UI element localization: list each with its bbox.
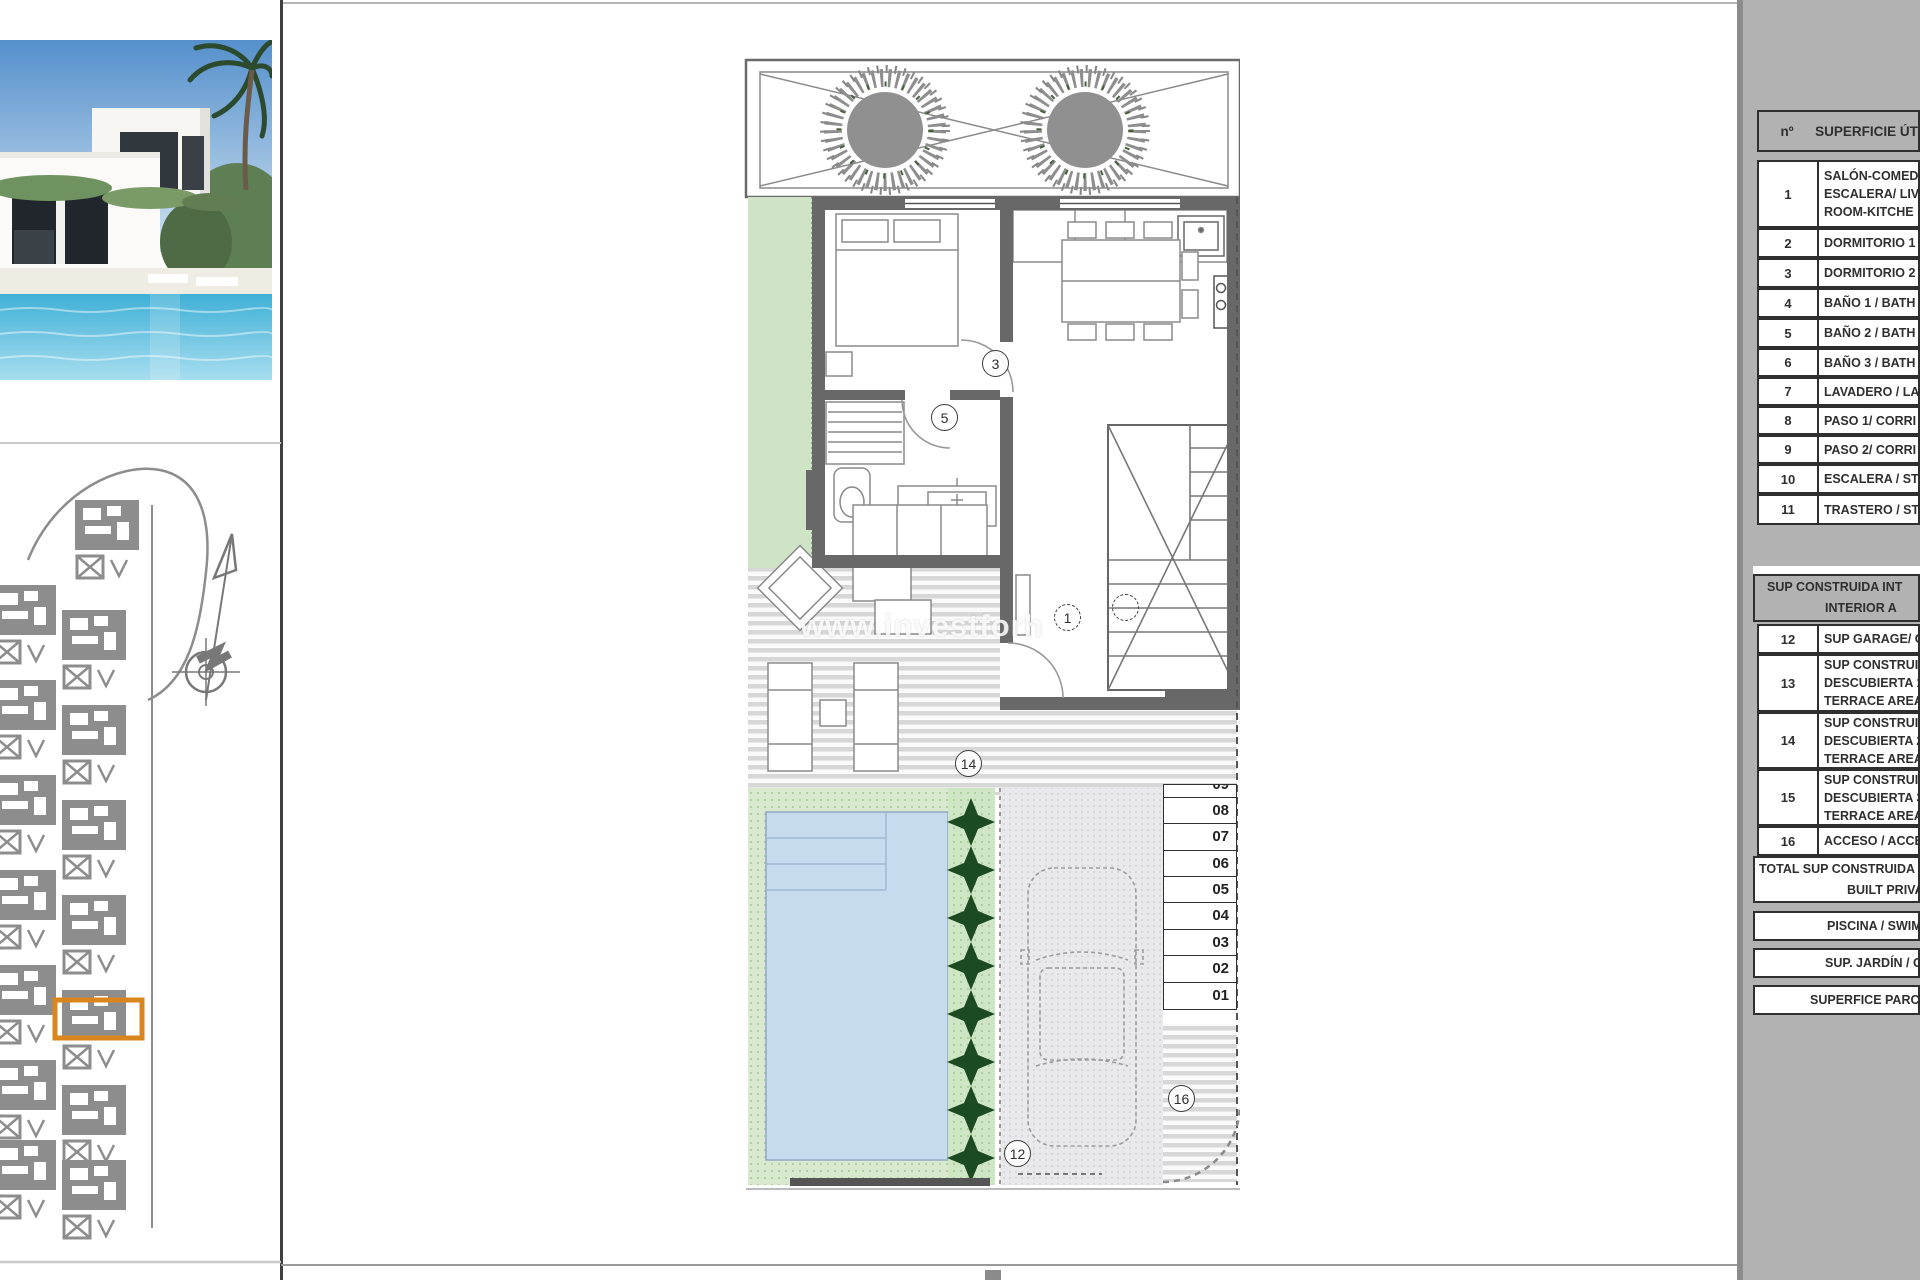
row-number: 3 (1759, 260, 1819, 286)
section-label: INTERIOR A (1755, 598, 1918, 618)
table-header: nº SUPERFICIE ÚTI (1757, 110, 1920, 152)
header-number-col: nº (1759, 124, 1815, 139)
table-row-5: 5 BAÑO 2 / BATH (1757, 318, 1920, 348)
stall-cell: 04 (1163, 902, 1237, 930)
table-row-16: 16 ACCESO / ACCE (1757, 826, 1920, 856)
table-row-11: 11 TRASTERO / STO (1757, 494, 1920, 525)
stall-cell: 06 (1163, 850, 1237, 878)
row-number: 11 (1759, 496, 1819, 523)
row-number: 15 (1759, 771, 1819, 824)
garden-strip (748, 197, 812, 572)
stall-cell: 07 (1163, 823, 1237, 851)
sheet-bottom-border (281, 1264, 1737, 1266)
row-number: 13 (1759, 656, 1819, 710)
row-label: TERRACE AREA (1824, 750, 1918, 768)
table-row-7: 7 LAVADERO / LA (1757, 377, 1920, 406)
garden-summary-box: SUP. JARDÍN / GAR (1753, 948, 1920, 978)
total-label: TOTAL SUP CONSTRUIDA (1755, 858, 1918, 880)
row-label: BAÑO 1 / BATH (1824, 294, 1918, 312)
row-label: LAVADERO / LA (1824, 383, 1918, 401)
villa-photo (0, 40, 272, 380)
outdoor-sofa (853, 505, 987, 563)
table-row-8: 8 PASO 1/ CORRI (1757, 406, 1920, 435)
stairs (1108, 425, 1237, 690)
room-label-16: 16 (1168, 1085, 1195, 1112)
row-number: 2 (1759, 230, 1819, 256)
table-row-12: 12 SUP GARAGE/ G (1757, 624, 1920, 654)
table-row-9: 9 PASO 2/ CORRI (1757, 435, 1920, 464)
plot-summary-box: SUPERFICE PARCELA (1753, 985, 1920, 1015)
room-label-1: 1 (1054, 604, 1081, 631)
table-row-1: 1 SALÓN-COMED ESCALERA/ LIVI ROOM-KITCHE (1757, 160, 1920, 228)
row-number: 8 (1759, 408, 1819, 433)
row-label: ACCESO / ACCE (1824, 832, 1918, 850)
table-row-13: 13 SUP CONSTRUI DESCUBIERTA 1 TERRACE AR… (1757, 654, 1920, 712)
summary-label: SUPERFICE PARCELA (1755, 987, 1918, 1013)
row-label: SUP CONSTRUI (1824, 771, 1918, 789)
row-label: PASO 1/ CORRI (1824, 412, 1918, 430)
row-label: ROOM-KITCHE (1824, 203, 1918, 221)
row-number: 10 (1759, 466, 1819, 492)
sun-lounger (768, 663, 812, 771)
row-number: 7 (1759, 379, 1819, 404)
header-label: SUPERFICIE ÚTI (1815, 124, 1918, 139)
row-number: 4 (1759, 290, 1819, 316)
stall-cell: 03 (1163, 929, 1237, 957)
row-label: ESCALERA/ LIVI (1824, 185, 1918, 203)
summary-label: PISCINA / SWIMM (1755, 913, 1918, 939)
row-number: 9 (1759, 437, 1819, 462)
room-label-empty (1112, 594, 1139, 621)
built-interior-header: SUP CONSTRUIDA INT INTERIOR A (1753, 574, 1920, 622)
photo-divider-line (0, 442, 281, 444)
row-number: 14 (1759, 714, 1819, 767)
total-label: BUILT PRIVAT (1755, 880, 1918, 900)
nightstand (826, 352, 852, 376)
total-built-box: TOTAL SUP CONSTRUIDA BUILT PRIVAT (1753, 856, 1920, 903)
row-number: 12 (1759, 626, 1819, 652)
site-plan (0, 465, 281, 1265)
row-label: TERRACE AREA (1824, 807, 1918, 825)
row-label: BAÑO 3 / BATH (1824, 354, 1918, 372)
row-label: SUP CONSTRUI (1824, 714, 1918, 732)
stall-cell: 02 (1163, 955, 1237, 983)
table-row-10: 10 ESCALERA / STA (1757, 464, 1920, 494)
watermark: www.investforh (800, 608, 1044, 644)
row-label: SUP CONSTRUI (1824, 656, 1918, 674)
scale-mark (985, 1270, 1001, 1280)
table-row-4: 4 BAÑO 1 / BATH (1757, 288, 1920, 318)
sun-lounger (148, 274, 188, 283)
row-number: 1 (1759, 162, 1819, 226)
row-label: PASO 2/ CORRI (1824, 441, 1918, 459)
row-label: SALÓN-COMED (1824, 167, 1918, 185)
row-label: SUP GARAGE/ G (1824, 630, 1918, 648)
stall-cell: 01 (1163, 982, 1237, 1010)
row-label: TERRACE AREA (1824, 692, 1918, 710)
panel-gap (1753, 566, 1920, 574)
pergola-frame (746, 60, 1240, 197)
row-number: 5 (1759, 320, 1819, 346)
table-row-6: 6 BAÑO 3 / BATH (1757, 348, 1920, 377)
stall-cell: 05 (1163, 876, 1237, 904)
table-row-15: 15 SUP CONSTRUI DESCUBIERTA 3 TERRACE AR… (1757, 769, 1920, 826)
stall-number-strip: 09 08 07 06 05 04 03 02 01 (1163, 786, 1237, 1010)
photo-pool (0, 294, 272, 380)
row-number: 16 (1759, 828, 1819, 854)
row-label: DORMITORIO 1 (1824, 234, 1918, 252)
sheet-top-border (281, 2, 1737, 4)
row-label: DORMITORIO 2 (1824, 264, 1918, 282)
room-label-3: 3 (982, 350, 1009, 377)
table-row-14: 14 SUP CONSTRUI DESCUBIERTA 2 TERRACE AR… (1757, 712, 1920, 769)
row-label: TRASTERO / STO (1824, 501, 1918, 519)
room-label-5: 5 (931, 404, 958, 431)
pool-summary-box: PISCINA / SWIMM (1753, 911, 1920, 941)
stall-cell: 08 (1163, 797, 1237, 825)
table-row-3: 3 DORMITORIO 2 (1757, 258, 1920, 288)
row-label: DESCUBIERTA 2 (1824, 732, 1918, 750)
row-label: ESCALERA / STA (1824, 470, 1918, 488)
summary-label: SUP. JARDÍN / GAR (1755, 950, 1918, 976)
plan-sheet: www.investforh 3 5 1 14 12 16 09 08 07 0… (0, 0, 1920, 1280)
section-label: SUP CONSTRUIDA INT (1755, 576, 1918, 598)
row-label: DESCUBIERTA 1 (1824, 674, 1918, 692)
room-label-14: 14 (955, 750, 982, 777)
room-label-12: 12 (1004, 1140, 1031, 1167)
row-label: DESCUBIERTA 3 (1824, 789, 1918, 807)
row-number: 6 (1759, 350, 1819, 375)
row-label: BAÑO 2 / BATH (1824, 324, 1918, 342)
table-row-2: 2 DORMITORIO 1 (1757, 228, 1920, 258)
